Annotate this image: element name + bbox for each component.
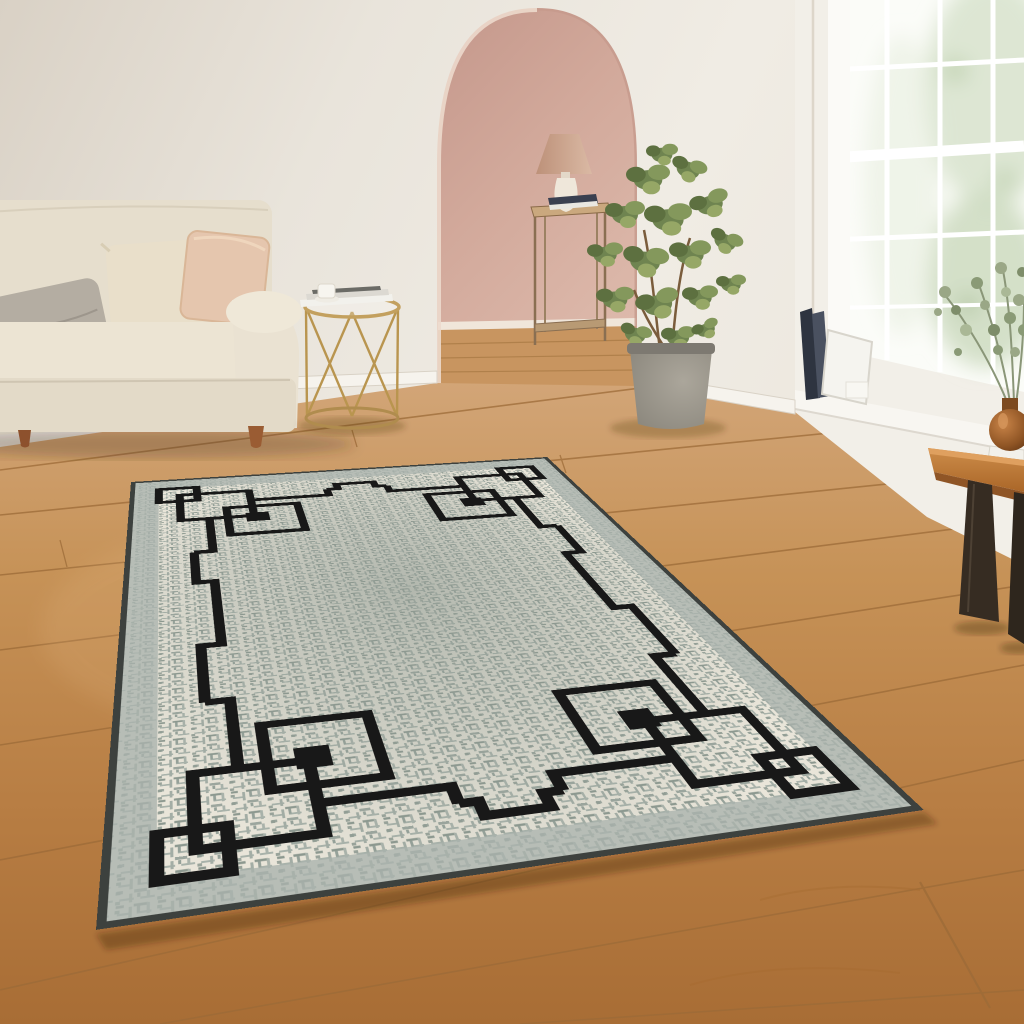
candle bbox=[846, 382, 868, 398]
living-room-photo bbox=[0, 0, 1024, 1024]
window-jamb bbox=[828, 0, 850, 352]
arched-doorway bbox=[425, 0, 650, 395]
sofa-skirt bbox=[0, 378, 296, 432]
hallway-floor bbox=[438, 326, 636, 392]
coffee-cup bbox=[315, 284, 339, 303]
seat-cushion bbox=[0, 322, 252, 386]
planter-pot bbox=[627, 343, 715, 429]
